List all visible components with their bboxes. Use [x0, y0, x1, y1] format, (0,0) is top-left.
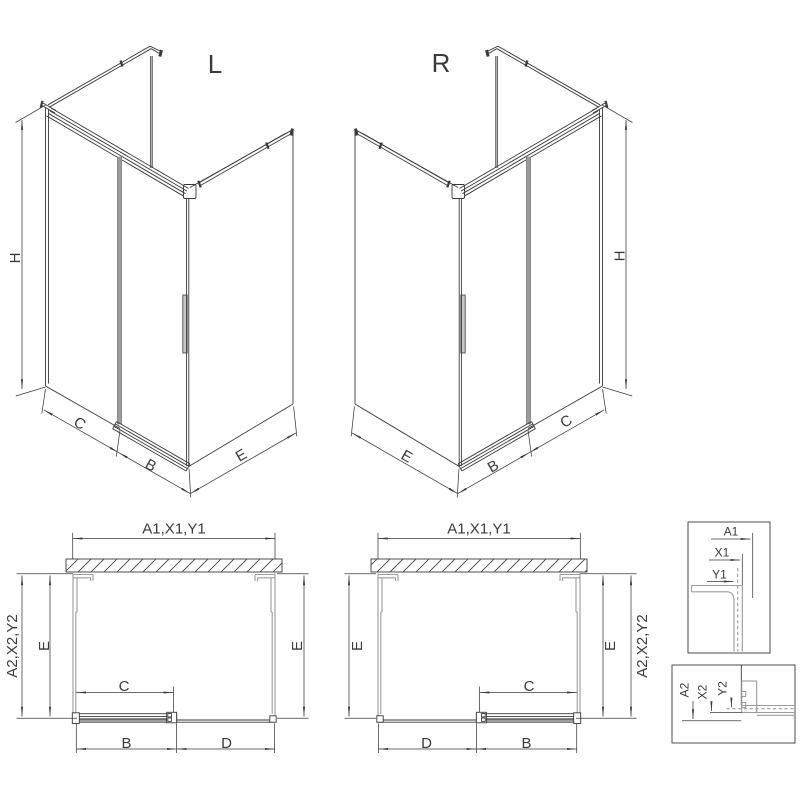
dim-label-door: B — [485, 457, 502, 477]
technical-drawing-sheet: L H C B E R H E B C A1,X1,Y1 A2,X2,Y2 E … — [0, 0, 800, 800]
iso-view-right: R H E B C — [351, 46, 632, 497]
iso-right-geometry — [351, 46, 632, 497]
iso-left-geometry — [16, 46, 297, 497]
detail-label-y2: Y2 — [716, 681, 730, 696]
detail-frame — [688, 522, 770, 653]
detail-rail-profile: A2 X2 Y2 — [672, 665, 795, 743]
wall-hatching — [67, 560, 282, 572]
dim-label-return: E — [233, 446, 250, 466]
detail-wall-profile: A1 X1 Y1 — [688, 522, 770, 653]
dim-label-width: A1,X1,Y1 — [142, 520, 205, 537]
detail-label-x1: X1 — [715, 546, 730, 560]
detail-label-a2: A2 — [678, 682, 692, 697]
dim-label-height: H — [7, 253, 24, 264]
dim-label-side-right: E — [602, 641, 619, 651]
dim-label-door: B — [142, 456, 159, 476]
dim-label-side-left: E — [36, 641, 53, 651]
view-title-right: R — [432, 48, 451, 78]
plan-view-right: A1,X1,Y1 E E A2,X2,Y2 C D B — [345, 520, 651, 753]
rail-section-drawing — [727, 681, 796, 715]
dim-label-fixed-side: C — [71, 414, 89, 434]
dim-label-door: B — [121, 735, 131, 752]
dim-label-opening: C — [119, 678, 130, 695]
dim-label-depth: A2,X2,Y2 — [4, 614, 21, 677]
dim-label-return: E — [398, 447, 415, 467]
detail-label-x2: X2 — [696, 684, 710, 699]
shower-enclosure-diagram: L H C B E R H E B C A1,X1,Y1 A2,X2,Y2 E … — [0, 0, 800, 800]
dim-label-fixed-side: C — [557, 411, 575, 431]
dim-label-opening: C — [524, 678, 535, 695]
wall-hatching — [372, 560, 587, 572]
detail-label-a1: A1 — [724, 525, 739, 539]
view-title-left: L — [208, 49, 222, 79]
iso-view-left: L H C B E — [7, 46, 297, 497]
plan-view-left: A1,X1,Y1 A2,X2,Y2 E E C B D — [4, 520, 309, 753]
detail-label-y1: Y1 — [712, 568, 727, 582]
dim-label-side-left: E — [349, 641, 366, 651]
dim-label-width: A1,X1,Y1 — [447, 520, 510, 537]
dim-label-side-right: E — [289, 641, 306, 651]
dim-label-height: H — [611, 251, 628, 262]
dim-label-depth: A2,X2,Y2 — [634, 614, 651, 677]
dim-label-fixed: D — [221, 735, 232, 752]
detail-frame — [672, 665, 795, 743]
dim-label-fixed: D — [421, 735, 432, 752]
dim-label-door: B — [521, 735, 531, 752]
